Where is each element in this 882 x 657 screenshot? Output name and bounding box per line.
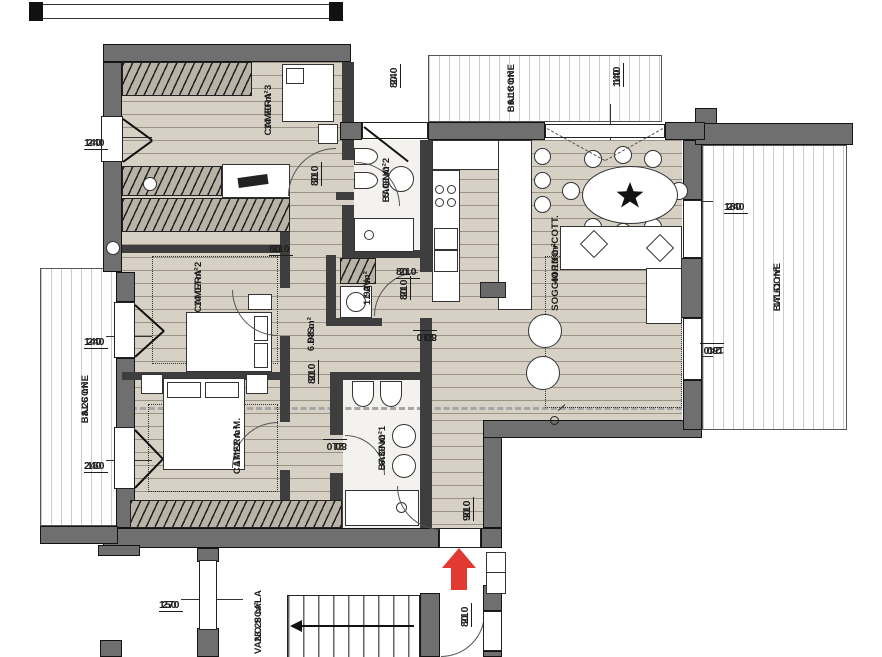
- toilet: [352, 381, 374, 407]
- kitchen-sink-divider: [434, 249, 458, 251]
- railing-cap-left: [29, 2, 43, 21]
- nightstand: [141, 374, 163, 394]
- stove-burner: [435, 198, 444, 207]
- tv: [480, 282, 506, 298]
- stove-burner: [435, 185, 444, 194]
- dining-chair: [644, 150, 662, 168]
- door-160x240-left: [114, 427, 135, 489]
- entrance-arrow-head: [442, 548, 476, 568]
- lamp: [106, 241, 120, 255]
- wall: [103, 44, 351, 62]
- duct-shaft: [486, 552, 506, 594]
- duct-tick: [486, 572, 506, 573]
- wall: [681, 258, 702, 318]
- pillow: [254, 343, 268, 368]
- wardrobe-camera3: [122, 62, 252, 96]
- wall: [483, 437, 502, 528]
- wall: [103, 528, 439, 548]
- wall: [483, 651, 502, 657]
- wall: [683, 380, 702, 430]
- nightstand: [318, 124, 338, 144]
- sink-round: [392, 454, 416, 478]
- pillow: [167, 382, 201, 398]
- drain: [364, 230, 374, 240]
- wall: [100, 640, 122, 657]
- washbasin-counter: [354, 218, 414, 252]
- partition: [122, 245, 280, 253]
- wall: [197, 628, 219, 657]
- balcony-top: [428, 55, 662, 122]
- pillow: [205, 382, 239, 398]
- partition: [336, 192, 354, 200]
- partition: [330, 372, 432, 380]
- sofa-chaise: [646, 268, 682, 324]
- armchair: [528, 314, 562, 348]
- wall: [40, 526, 118, 544]
- door-key-symbol: [550, 416, 559, 425]
- stair-door-80x210: [483, 611, 502, 651]
- partition: [326, 255, 336, 325]
- wall-stairs-right: [420, 593, 440, 657]
- window-240x180-right-top: [683, 200, 702, 258]
- entrance-arrow-shaft: [451, 568, 467, 590]
- wall-top-center-a: [340, 122, 362, 140]
- nightstand: [246, 374, 268, 394]
- partition: [280, 336, 290, 422]
- bidet: [380, 381, 402, 407]
- window-270x150: [199, 560, 217, 630]
- window-240x140-left: [114, 302, 135, 358]
- dining-chair: [562, 182, 580, 200]
- stove-burner: [447, 185, 456, 194]
- balcony-left: [40, 268, 118, 526]
- lamp: [143, 177, 157, 191]
- stool: [534, 196, 551, 213]
- partition: [420, 140, 432, 272]
- stairs-arrow-line: [302, 625, 414, 627]
- wall: [481, 528, 502, 548]
- entrance-door-210x90: [439, 528, 481, 548]
- wall: [483, 420, 702, 438]
- railing-top: [34, 4, 336, 19]
- pillow: [286, 68, 304, 84]
- partition: [342, 62, 354, 122]
- stool: [534, 172, 551, 189]
- wall-balcony-right-top: [695, 123, 853, 145]
- partition: [330, 380, 343, 435]
- floor-plan: CAMERA 314.70 m² BAGNO 25.09 m² LAV.1.92…: [0, 0, 882, 657]
- partition: [326, 318, 382, 326]
- partition: [342, 205, 354, 250]
- stool: [534, 148, 551, 165]
- partition: [342, 140, 354, 160]
- wardrobe-dressing-1: [122, 166, 222, 196]
- wardrobe-cameram: [130, 500, 342, 528]
- wall-top-center-b: [428, 122, 545, 140]
- wall: [98, 545, 140, 556]
- stove-burner: [447, 198, 456, 207]
- wall-top-center-c: [665, 122, 705, 140]
- balcony-door-240x80: [362, 122, 428, 139]
- wardrobe-dressing-2: [122, 198, 290, 232]
- wall: [116, 358, 135, 428]
- sink-round: [392, 424, 416, 448]
- wall: [116, 272, 135, 302]
- armchair: [526, 356, 560, 390]
- stairs-arrow-head: [290, 620, 302, 632]
- window-240x180-right-bottom: [683, 318, 702, 380]
- railing-cap-right: [329, 2, 343, 21]
- wall: [103, 62, 122, 118]
- wall: [103, 160, 122, 272]
